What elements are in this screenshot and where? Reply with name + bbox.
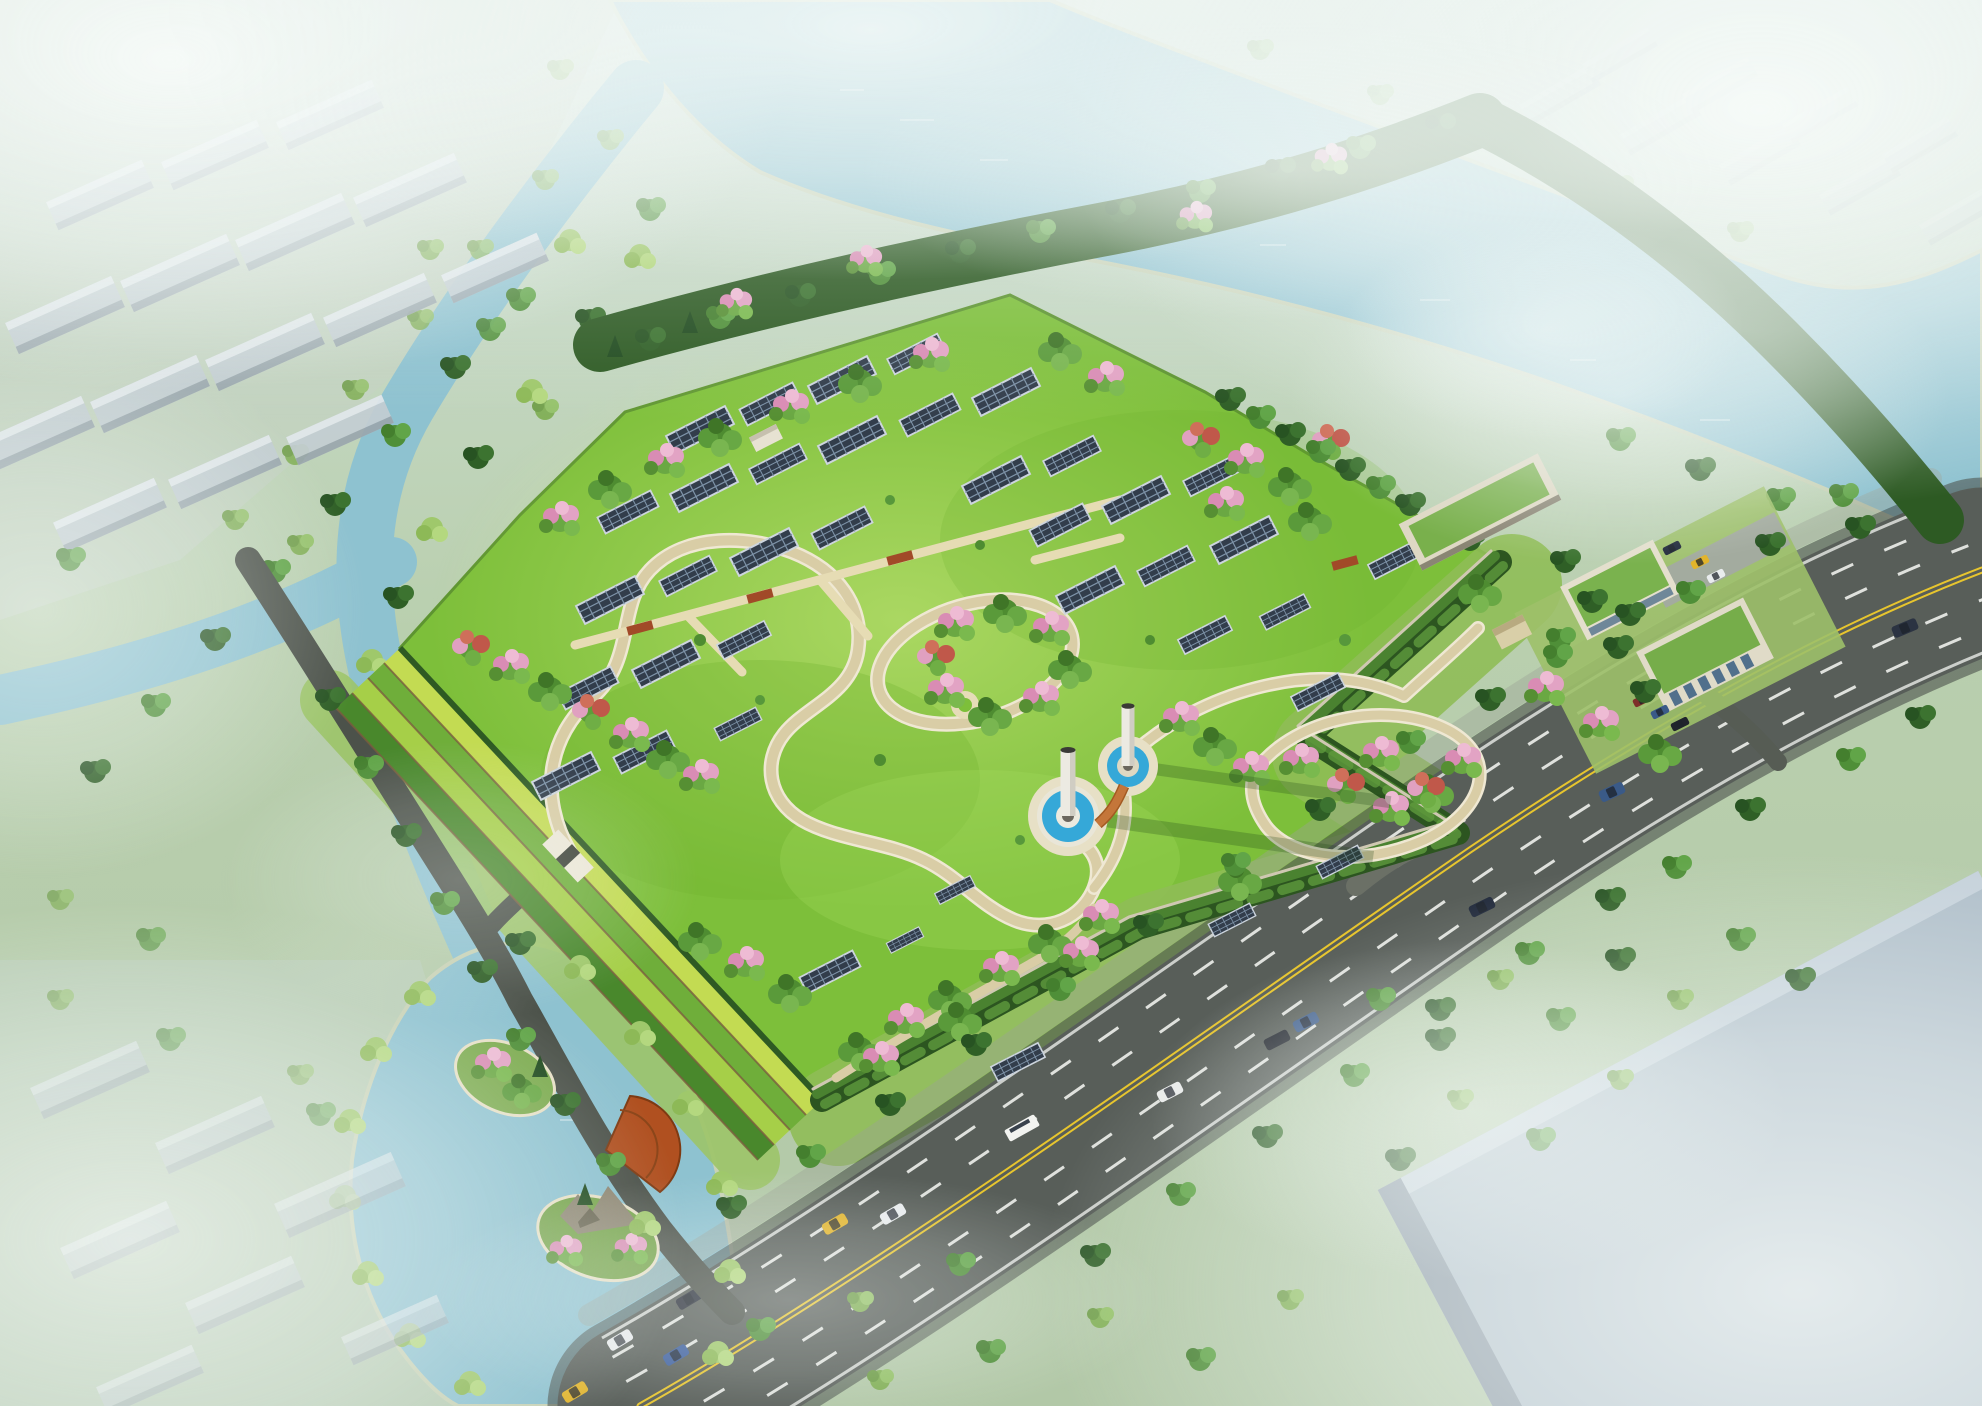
aerial-rendering-canvas [0, 0, 1982, 1406]
vent-stack-a [1061, 747, 1076, 816]
aerial-rendering [0, 0, 1982, 1406]
vent-stack-b [1122, 703, 1135, 766]
